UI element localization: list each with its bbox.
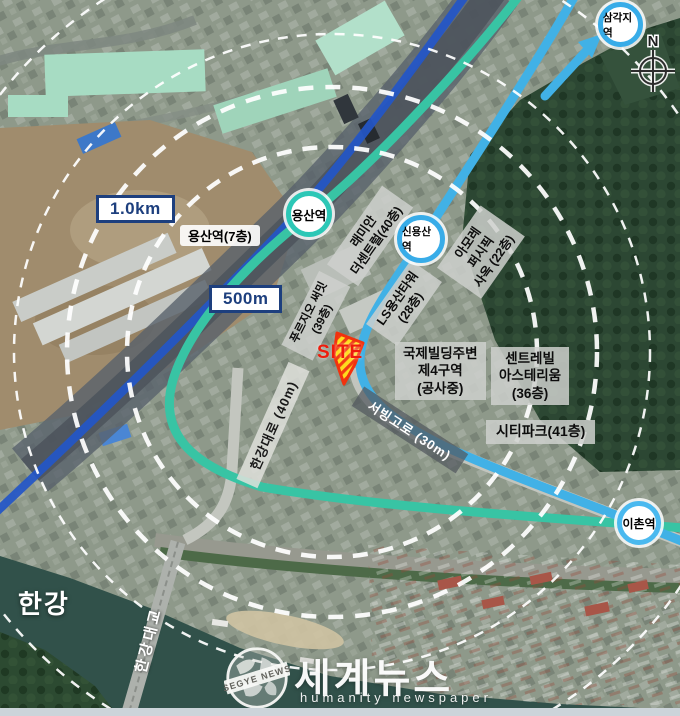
label-citypark: 시티파크(41층) (486, 420, 595, 444)
watermark-tagline: humanity newspaper (300, 690, 492, 705)
label-line: 센트레빌 (499, 350, 561, 367)
bottom-edge-strip (0, 708, 680, 716)
label-line: 아스테리움 (499, 367, 561, 384)
label-line: (36층) (499, 385, 561, 402)
compass-north-label: N (648, 33, 659, 50)
label-yongsan-station-building: 용산역(7층) (180, 225, 260, 246)
green-roof-building (8, 95, 68, 117)
station-name: 삼각지역 (603, 10, 638, 40)
station-samgakji: 삼각지역 (598, 2, 643, 47)
label-gukje-district: 국제빌딩주변 제4구역 (공사중) (395, 342, 486, 400)
station-name: 용산역 (292, 205, 327, 224)
satellite-location-map: N 1.0km 500m 용산역(7층) 래미안 더센트럴(40층) 아모레 퍼… (0, 0, 680, 716)
label-line: 제4구역 (403, 362, 478, 379)
label-site: SITE (317, 342, 363, 364)
station-sinyongsan: 신용산역 (397, 215, 445, 263)
label-centreville: 센트레빌 아스테리움 (36층) (491, 347, 569, 405)
label-line: (공사중) (403, 380, 478, 397)
station-name: 이촌역 (622, 515, 655, 532)
green-roof-building (44, 49, 205, 97)
label-han-river: 한강 (18, 584, 70, 621)
label-line: 국제빌딩주변 (403, 345, 478, 362)
station-ichon: 이촌역 (617, 501, 661, 545)
watermark-globe-icon: SEGYE NEWS (224, 645, 290, 716)
station-yongsan: 용산역 (286, 191, 332, 237)
station-name: 신용산역 (402, 224, 440, 254)
scale-label-1km: 1.0km (96, 195, 175, 223)
scale-label-500m: 500m (209, 285, 282, 313)
